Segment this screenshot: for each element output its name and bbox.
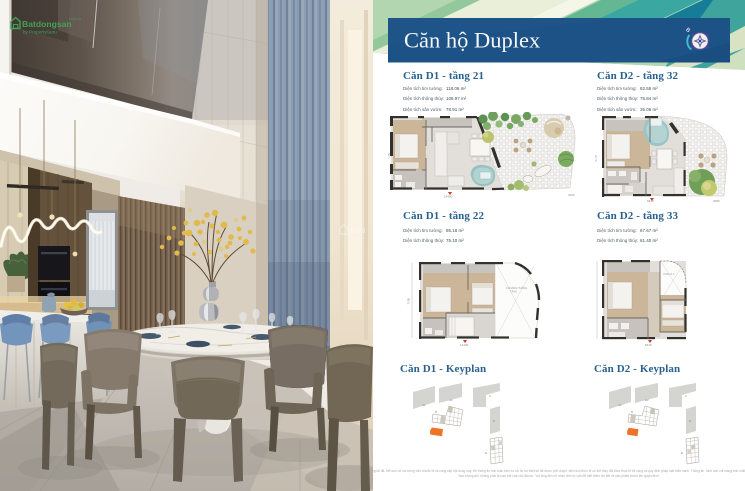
svg-text:8130: 8130 xyxy=(595,154,598,161)
svg-text:Batdongsan: Batdongsan xyxy=(22,19,72,29)
svg-text:7100: 7100 xyxy=(388,152,391,159)
svg-text:9430: 9430 xyxy=(647,199,654,202)
svg-text:3100: 3100 xyxy=(568,193,575,197)
svg-text:5430: 5430 xyxy=(645,343,652,346)
svg-text:A2: A2 xyxy=(449,398,453,402)
svg-text:3080: 3080 xyxy=(713,199,720,202)
svg-text:Batd: Batd xyxy=(350,228,366,235)
svg-text:A2: A2 xyxy=(645,398,649,402)
svg-text:VOID 02-1: VOID 02-1 xyxy=(663,273,675,276)
svg-text:by PropertyGuru: by PropertyGuru xyxy=(23,30,57,35)
svg-text:E: E xyxy=(485,451,487,455)
svg-text:C: C xyxy=(489,394,492,398)
svg-text:TẦNG: TẦNG xyxy=(510,290,517,294)
svg-text:họa tương đối, không phải là c: họa tương đối, không phải là cam kết của… xyxy=(459,474,660,478)
svg-text:C: C xyxy=(685,394,688,398)
svg-text:A1: A1 xyxy=(422,403,426,407)
svg-text:COM.VN: COM.VN xyxy=(69,17,81,21)
svg-text:14400: 14400 xyxy=(444,195,453,199)
svg-text:*Chúng tôi đã, hết sức nỗ lực: *Chúng tôi đã, hết sức nỗ lực trong việc… xyxy=(373,468,745,473)
svg-text:A1: A1 xyxy=(618,403,622,407)
svg-text:B: B xyxy=(435,410,437,414)
svg-text:Căn hộ Duplex: Căn hộ Duplex xyxy=(404,28,540,53)
svg-text:7105: 7105 xyxy=(407,297,411,304)
svg-text:7130: 7130 xyxy=(595,297,596,304)
svg-text:B: B xyxy=(631,410,633,414)
svg-text:E: E xyxy=(681,451,683,455)
svg-text:14400: 14400 xyxy=(460,343,469,346)
svg-text:by Prop: by Prop xyxy=(350,235,365,240)
